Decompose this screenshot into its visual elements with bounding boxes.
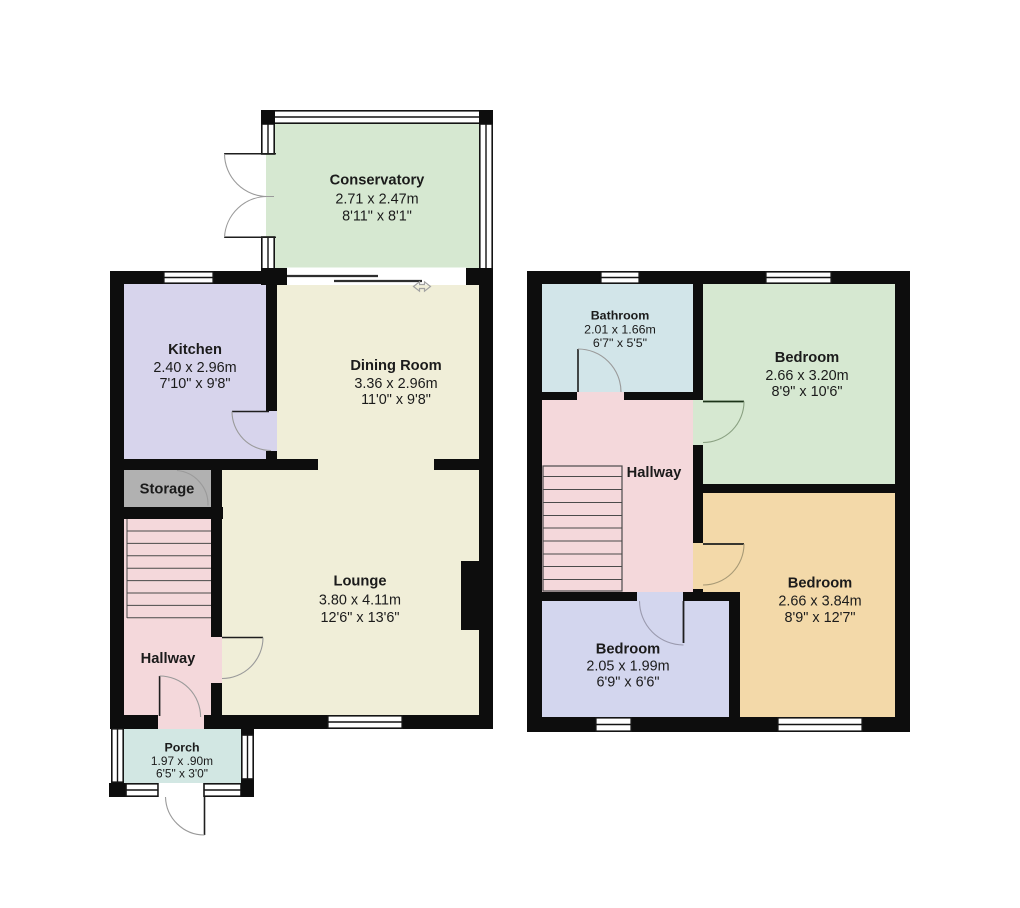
svg-text:Dining Room: Dining Room: [350, 358, 441, 374]
svg-text:2.66 x 3.84m: 2.66 x 3.84m: [778, 594, 861, 610]
svg-text:Lounge: Lounge: [333, 574, 386, 590]
svg-text:3.36 x 2.96m: 3.36 x 2.96m: [354, 376, 437, 392]
svg-text:2.05 x 1.99m: 2.05 x 1.99m: [586, 659, 669, 675]
svg-text:8'9" x 10'6": 8'9" x 10'6": [772, 384, 843, 400]
svg-text:Bedroom: Bedroom: [788, 576, 852, 592]
svg-text:Bedroom: Bedroom: [775, 350, 839, 366]
svg-text:6'5" x 3'0": 6'5" x 3'0": [156, 767, 208, 781]
svg-text:2.01 x 1.66m: 2.01 x 1.66m: [584, 323, 656, 337]
svg-text:6'9" x 6'6": 6'9" x 6'6": [597, 675, 660, 691]
svg-text:Hallway: Hallway: [141, 651, 197, 667]
svg-text:2.40 x 2.96m: 2.40 x 2.96m: [153, 360, 236, 376]
svg-text:Hallway: Hallway: [627, 465, 683, 481]
svg-text:Bedroom: Bedroom: [596, 642, 660, 658]
svg-text:6'7" x 5'5": 6'7" x 5'5": [593, 336, 647, 350]
svg-text:Storage: Storage: [140, 482, 195, 498]
svg-text:12'6" x 13'6": 12'6" x 13'6": [321, 610, 400, 626]
svg-text:11'0" x 9'8": 11'0" x 9'8": [361, 392, 431, 408]
svg-text:Bathroom: Bathroom: [591, 309, 650, 323]
svg-text:2.66 x 3.20m: 2.66 x 3.20m: [765, 368, 848, 384]
svg-text:8'9" x 12'7": 8'9" x 12'7": [785, 610, 856, 626]
svg-text:Kitchen: Kitchen: [168, 342, 222, 358]
svg-text:Porch: Porch: [164, 741, 199, 755]
svg-text:7'10" x 9'8": 7'10" x 9'8": [160, 376, 231, 392]
svg-text:8'11" x 8'1": 8'11" x 8'1": [342, 209, 412, 225]
svg-text:2.71 x 2.47m: 2.71 x 2.47m: [335, 192, 418, 208]
svg-text:Conservatory: Conservatory: [330, 173, 426, 189]
svg-text:3.80 x 4.11m: 3.80 x 4.11m: [319, 593, 401, 609]
